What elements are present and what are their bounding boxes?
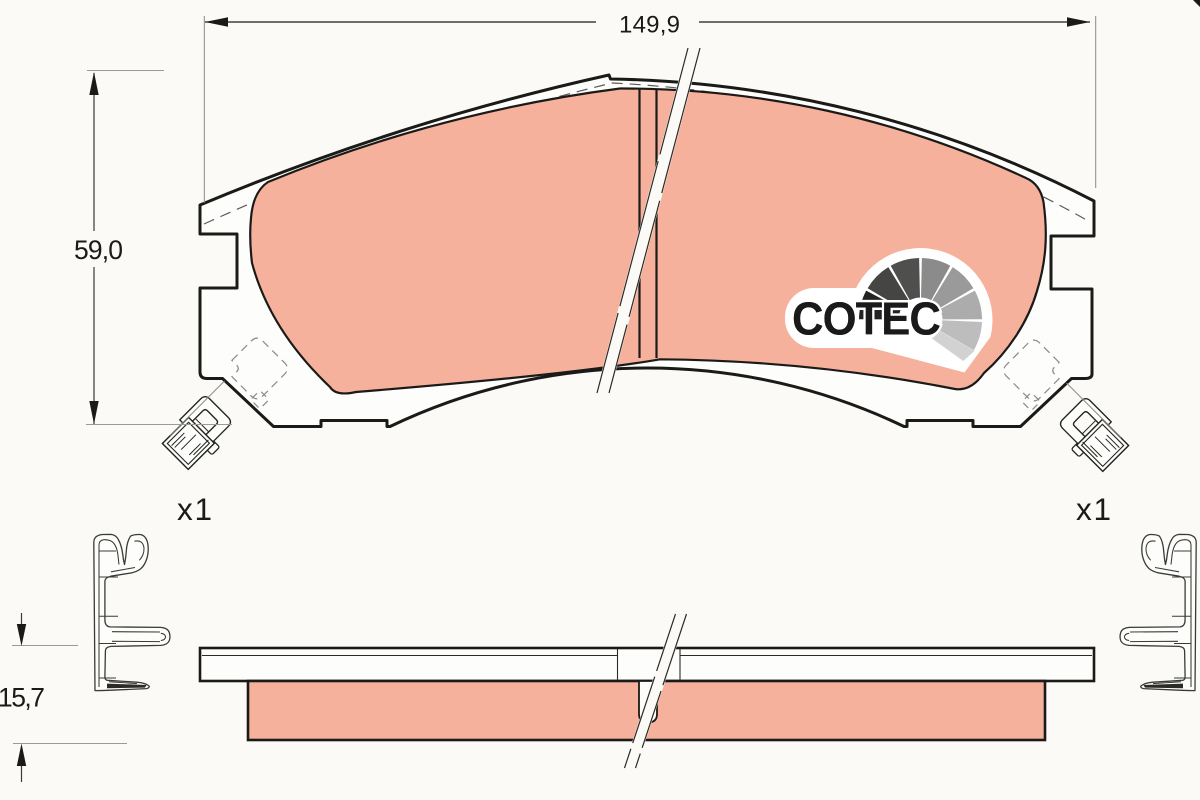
svg-text:x1: x1: [177, 491, 212, 527]
svg-text:15,7: 15,7: [0, 683, 45, 713]
svg-text:59,0: 59,0: [74, 235, 123, 265]
svg-text:149,9: 149,9: [619, 12, 680, 39]
svg-text:x1: x1: [1076, 491, 1111, 527]
svg-text:COTEC: COTEC: [792, 293, 940, 345]
